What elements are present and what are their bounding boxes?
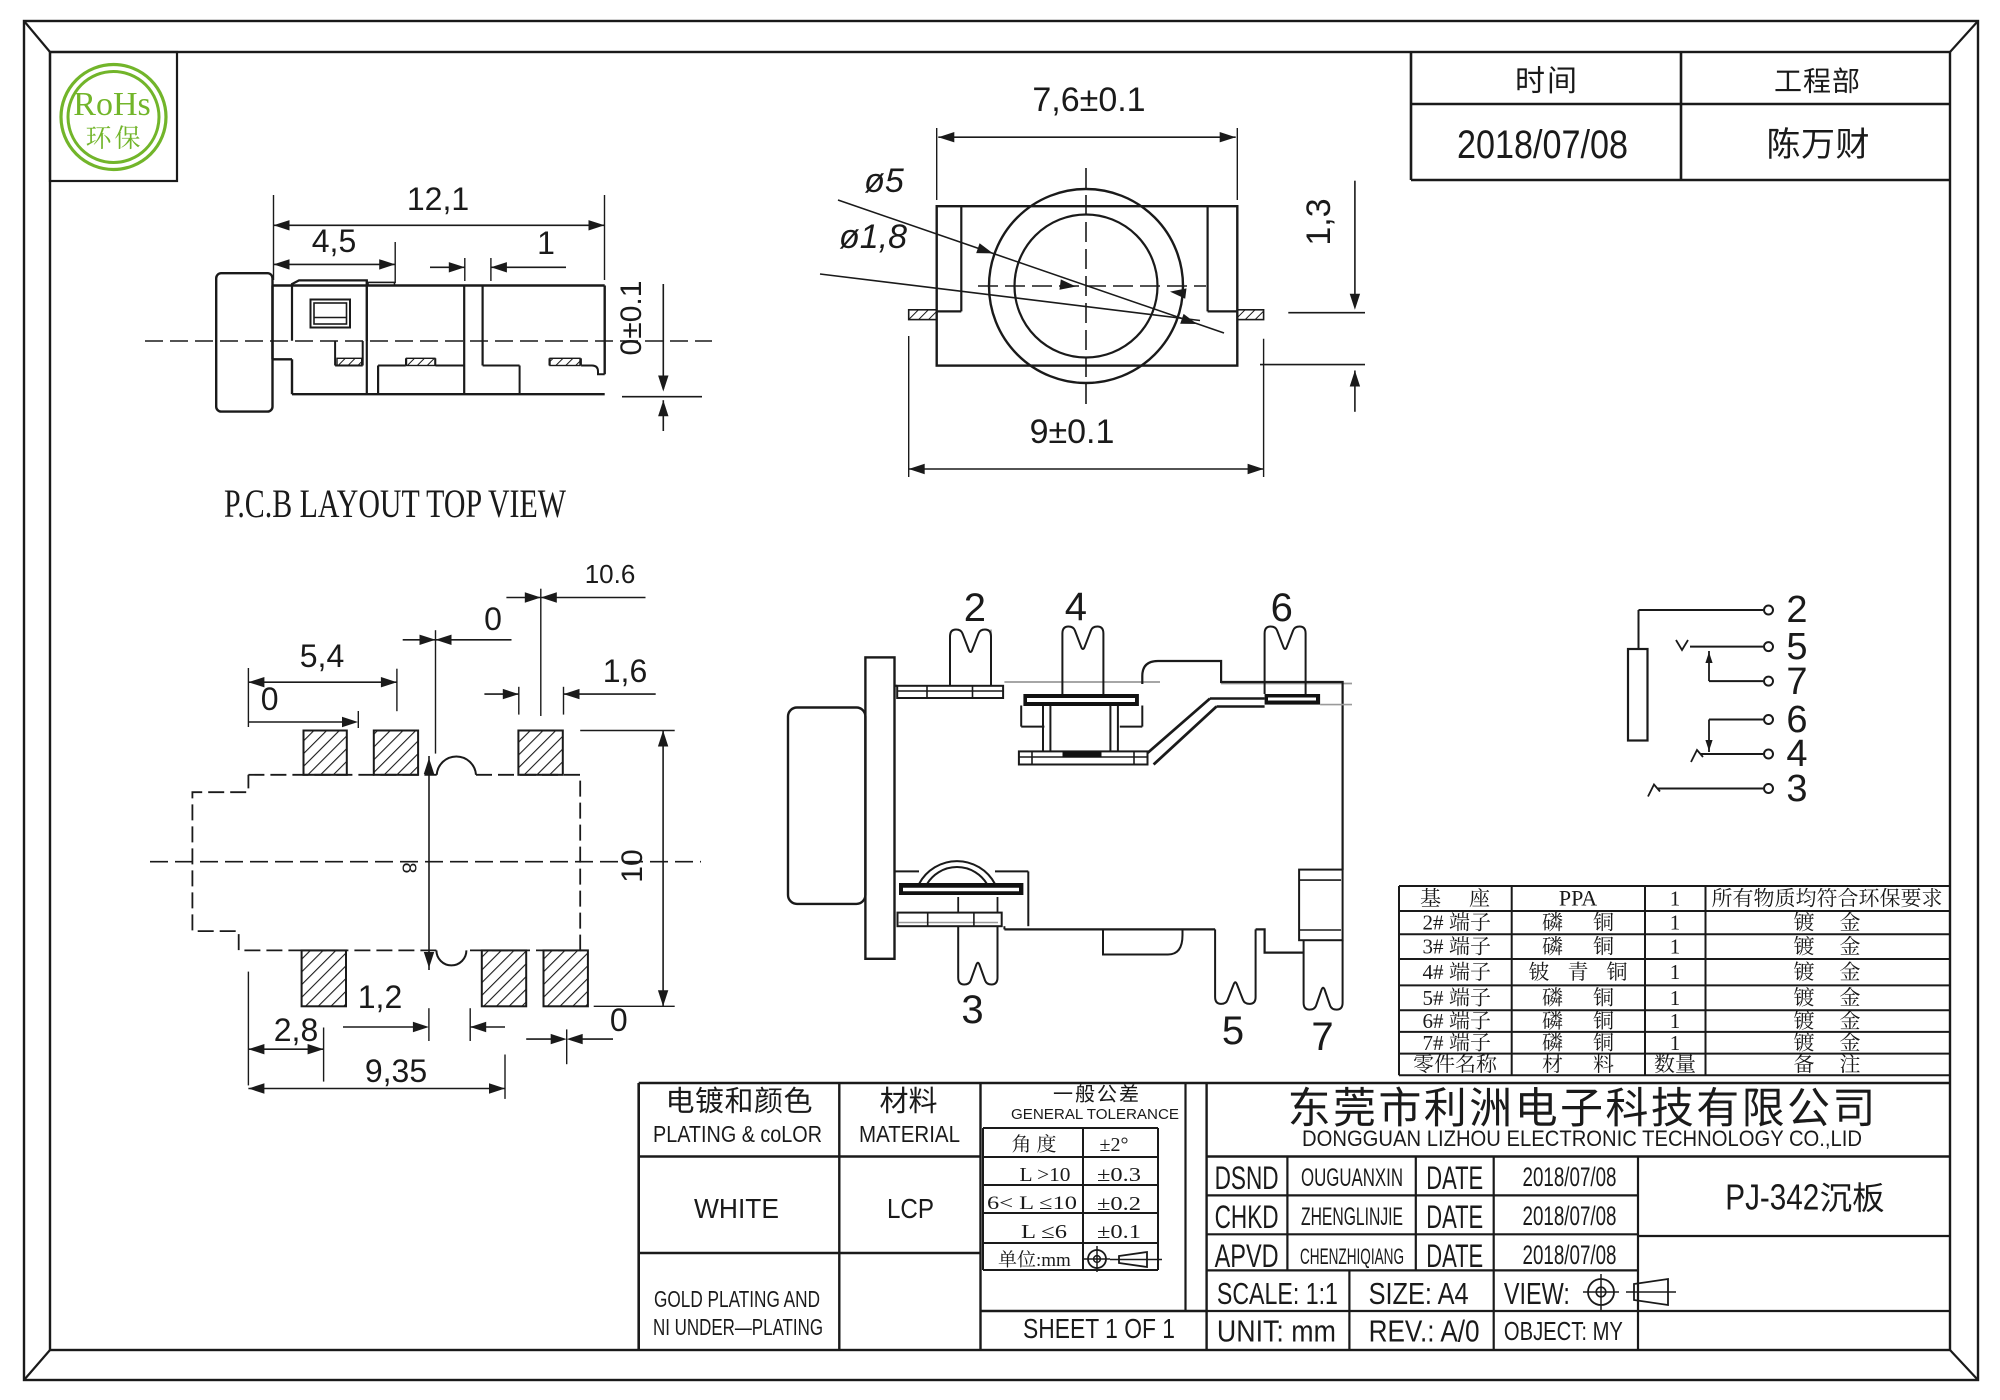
svg-text:7,6±0.1: 7,6±0.1	[1032, 81, 1145, 119]
svg-text:10.6: 10.6	[585, 559, 636, 589]
svg-text:PPA: PPA	[1559, 886, 1597, 911]
svg-text:1: 1	[1670, 960, 1681, 984]
svg-text:REV.: A/0: REV.: A/0	[1369, 1314, 1480, 1349]
svg-text:UNIT: mm: UNIT: mm	[1217, 1314, 1336, 1349]
svg-text:4#: 4#	[1423, 960, 1445, 984]
svg-text:3: 3	[961, 988, 983, 1032]
svg-text:MATERIAL: MATERIAL	[859, 1121, 960, 1147]
svg-text:7: 7	[1311, 1015, 1333, 1059]
svg-text:3#: 3#	[1423, 935, 1445, 959]
svg-text:5: 5	[1222, 1009, 1244, 1053]
svg-text:1,2: 1,2	[358, 979, 402, 1015]
svg-text:6< L ≤10: 6< L ≤10	[987, 1193, 1077, 1214]
svg-text:APVD: APVD	[1215, 1238, 1279, 1274]
svg-text:10: 10	[616, 849, 649, 882]
svg-text:ø5: ø5	[864, 162, 904, 200]
svg-text:2018/07/08: 2018/07/08	[1523, 1201, 1617, 1231]
svg-text:12,1: 12,1	[407, 181, 469, 217]
svg-text:2018/07/08: 2018/07/08	[1523, 1240, 1617, 1270]
svg-text:8: 8	[398, 862, 420, 873]
svg-text:1: 1	[1670, 935, 1681, 959]
svg-text:2018/07/08: 2018/07/08	[1523, 1162, 1617, 1192]
svg-text:±0.1: ±0.1	[1097, 1221, 1141, 1243]
svg-text:GOLD PLATING AND: GOLD PLATING AND	[654, 1286, 820, 1312]
svg-text:L ≤6: L ≤6	[1021, 1221, 1067, 1243]
svg-text:6#: 6#	[1423, 1009, 1445, 1033]
svg-text:0: 0	[261, 681, 279, 717]
svg-text:±2°: ±2°	[1100, 1134, 1129, 1156]
svg-text:3: 3	[1786, 768, 1807, 810]
svg-text:2#: 2#	[1423, 911, 1445, 935]
svg-text:6: 6	[1271, 586, 1293, 630]
svg-text:DSND: DSND	[1215, 1160, 1279, 1196]
svg-text:0±0.1: 0±0.1	[615, 281, 648, 356]
svg-text:0: 0	[610, 1002, 628, 1038]
svg-text:0: 0	[484, 601, 502, 637]
svg-text:GENERAL TOLERANCE: GENERAL TOLERANCE	[1011, 1106, 1179, 1123]
svg-text:5#: 5#	[1423, 986, 1445, 1010]
svg-text:P.C.B LAYOUT TOP VIEW: P.C.B LAYOUT TOP VIEW	[224, 481, 566, 526]
svg-text:SIZE: A4: SIZE: A4	[1369, 1276, 1469, 1311]
svg-text:±0.3: ±0.3	[1097, 1164, 1141, 1186]
svg-text:1: 1	[1670, 1031, 1681, 1055]
svg-text:9,35: 9,35	[365, 1053, 427, 1089]
svg-text:CHENZHIQIANG: CHENZHIQIANG	[1300, 1244, 1404, 1269]
svg-text:DATE: DATE	[1426, 1199, 1483, 1235]
svg-text:1: 1	[1670, 911, 1681, 935]
svg-text:L >10: L >10	[1020, 1164, 1071, 1186]
svg-text:2,8: 2,8	[274, 1012, 318, 1048]
svg-text:4,5: 4,5	[312, 223, 356, 259]
svg-text:±0.2: ±0.2	[1097, 1193, 1141, 1215]
svg-text:1,6: 1,6	[603, 653, 647, 689]
svg-text:RoHs: RoHs	[73, 86, 150, 123]
svg-text:7#: 7#	[1423, 1031, 1445, 1055]
svg-text:2: 2	[1786, 589, 1807, 631]
svg-text:9±0.1: 9±0.1	[1030, 413, 1115, 451]
svg-text:2018/07/08: 2018/07/08	[1457, 123, 1628, 167]
svg-text:1: 1	[1670, 1009, 1681, 1033]
svg-text:1: 1	[1670, 887, 1681, 911]
svg-text:DATE: DATE	[1426, 1238, 1483, 1274]
svg-text:OUGUANXIN: OUGUANXIN	[1301, 1164, 1403, 1192]
svg-text:CHKD: CHKD	[1215, 1199, 1279, 1235]
svg-text:1: 1	[1670, 986, 1681, 1010]
svg-text:SHEET 1 OF 1: SHEET 1 OF 1	[1023, 1313, 1175, 1344]
svg-text:1: 1	[537, 225, 555, 261]
svg-text:DONGGUAN LIZHOU ELECTRONIC TEC: DONGGUAN LIZHOU ELECTRONIC TECHNOLOGY CO…	[1302, 1126, 1862, 1151]
svg-text:DATE: DATE	[1426, 1160, 1483, 1196]
svg-text:OBJECT: MY: OBJECT: MY	[1504, 1316, 1623, 1346]
svg-text:PJ-342: PJ-342	[1725, 1177, 1819, 1218]
svg-text:4: 4	[1065, 585, 1087, 629]
svg-text:VIEW:: VIEW:	[1504, 1276, 1570, 1311]
svg-text:PLATING & coLOR: PLATING & coLOR	[653, 1121, 822, 1147]
svg-text:LCP: LCP	[887, 1193, 934, 1224]
svg-text:ZHENGLINJIE: ZHENGLINJIE	[1301, 1203, 1403, 1231]
svg-text:5,4: 5,4	[300, 638, 344, 674]
svg-text:ø1,8: ø1,8	[839, 218, 907, 256]
svg-text:NI UNDER—PLATING: NI UNDER—PLATING	[653, 1314, 823, 1340]
svg-text:SCALE: 1:1: SCALE: 1:1	[1217, 1276, 1338, 1311]
svg-text::mm: :mm	[1036, 1250, 1071, 1271]
svg-text:WHITE: WHITE	[694, 1193, 779, 1224]
svg-text:7: 7	[1786, 661, 1807, 703]
svg-text:1,3: 1,3	[1300, 198, 1338, 245]
svg-text:2: 2	[964, 586, 986, 630]
